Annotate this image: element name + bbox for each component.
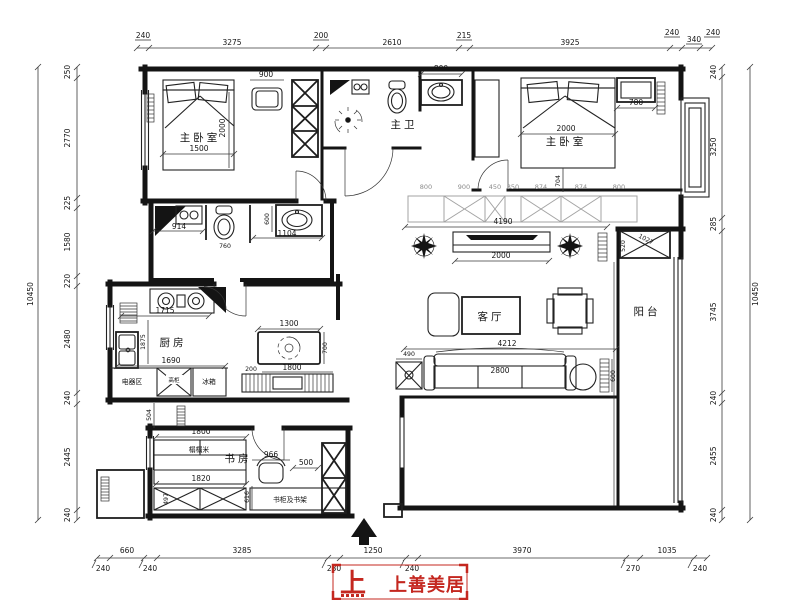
dim-top-4: 215 — [457, 31, 472, 40]
dim-chain-bottom: 240 660 240 3285 230 1250 240 3970 270 1… — [92, 546, 710, 573]
dim-left-3: 1580 — [63, 232, 72, 251]
dim-bed2-cab: 780 — [629, 98, 644, 107]
label-appliance-area: 电器区 — [122, 377, 143, 386]
dim-tatami-b: 1820 — [191, 474, 210, 483]
room-study: 榻榻米 1800 1820 书房 497 966 500 书柜及书架 616 — [153, 427, 346, 513]
dim-right-1: 3250 — [709, 137, 718, 156]
dim-ward-0: 800 — [420, 183, 432, 191]
room-label-master-bath: 主卫 — [391, 119, 418, 131]
dim-bath-sink: 800 — [434, 64, 449, 73]
balcony-cabinet: 1027 520 — [620, 231, 670, 258]
label-tall-cabinet: 高柜 — [168, 376, 180, 384]
dim-balc-side: 520 — [620, 240, 627, 252]
dim-sofa: 2800 — [490, 366, 509, 375]
sink-icon — [421, 80, 462, 105]
dim-right-4: 240 — [709, 391, 718, 406]
door-swings — [214, 148, 508, 460]
dim-bath2-d: 600 — [264, 213, 271, 225]
label-bookcase-shelf: 书柜及书架 — [273, 495, 307, 504]
bed-icon — [521, 78, 615, 168]
dim-bed1-bench: 900 — [259, 70, 274, 79]
dim-right-5: 2455 — [709, 446, 718, 465]
dim-side-table: 490 — [403, 351, 415, 358]
dim-bed1-len: 2000 — [218, 118, 227, 137]
dim-left-7: 2445 — [63, 447, 72, 466]
dim-chair: 966 — [264, 450, 279, 459]
dim-cab: 497 — [163, 493, 170, 505]
room-label-balcony: 阳台 — [634, 305, 661, 318]
dim-living-total: 4212 — [497, 339, 516, 348]
dim-ward-6: 800 — [613, 183, 625, 191]
dim-right-total: 10450 — [751, 282, 760, 306]
corner-cabinet-icon — [198, 287, 226, 313]
dim-bottom-7: 3970 — [512, 546, 531, 555]
dim-ward-3: 350 — [507, 183, 519, 191]
shower-corner-icon — [155, 206, 186, 236]
dim-bench-w: 1800 — [282, 363, 301, 372]
dim-left-1: 2770 — [63, 128, 72, 147]
dim-bed1-w: 1500 — [189, 144, 208, 153]
shower-head-icon — [335, 107, 362, 133]
brand-logo: 上 上善美居 — [333, 565, 467, 599]
kitchen-sink-icon — [116, 332, 138, 368]
dim-desk: 500 — [299, 458, 314, 467]
dim-ward-1: 900 — [458, 183, 470, 191]
washer-icon — [352, 80, 369, 94]
shower-corner-icon — [330, 80, 350, 95]
dim-kit-a: 1715 — [155, 306, 174, 315]
dim-kit-c: 1690 — [161, 356, 180, 365]
dim-bottom-5: 1250 — [363, 546, 382, 555]
floor-plan-svg: 240 3275 200 2610 215 3925 240 340 240 2… — [0, 0, 800, 600]
dim-bottom-9: 1035 — [657, 546, 676, 555]
room-living: 客厅 4212 490 2800 600 — [396, 288, 619, 392]
dim-bath2-toilet: 760 — [219, 243, 231, 250]
bench-icon — [252, 88, 282, 110]
room-label-master-bedroom-right: 主卧室 — [546, 135, 587, 148]
dim-chain-top: 240 3275 200 2610 215 3925 240 340 240 — [134, 28, 720, 51]
dim-top-6: 240 — [665, 28, 680, 37]
dining-table-icon — [258, 332, 320, 364]
dim-bed2-depth: 704 — [555, 175, 562, 187]
radiator-icon — [657, 82, 665, 114]
room-kitchen: 厨房 1715 1875 1690 电器区 高柜 冰箱 1300 700 — [110, 287, 333, 396]
room-label-kitchen: 厨房 — [160, 336, 187, 349]
room-label-living: 客厅 — [478, 310, 505, 323]
dim-left-8: 240 — [63, 508, 72, 523]
radiator-icon — [120, 303, 137, 323]
toilet-icon — [388, 81, 406, 113]
dim-left-2: 225 — [63, 196, 72, 211]
dim-living-side: 600 — [610, 370, 617, 382]
dim-kit-b: 1875 — [140, 334, 147, 350]
dim-bath2-sink: 1104 — [277, 229, 296, 238]
logo-mark: 上 — [340, 568, 366, 598]
dim-bottom-10: 240 — [693, 564, 708, 573]
dim-left-0: 250 — [63, 65, 72, 80]
label-tatami: 榻榻米 — [189, 445, 210, 454]
radiator-icon — [598, 233, 607, 261]
dim-chain-left: 250 2770 225 1580 220 2480 240 2445 240 … — [26, 64, 80, 523]
rug-icon — [428, 293, 459, 336]
dim-right-3: 3745 — [709, 302, 718, 321]
dim-top-3: 2610 — [382, 38, 401, 47]
room-label-study: 书房 — [225, 452, 252, 465]
dim-top-5: 3925 — [560, 38, 579, 47]
dim-table-d: 700 — [322, 342, 329, 354]
dim-tv-wall: 2000 — [491, 251, 510, 260]
service-bay — [97, 470, 144, 518]
dim-left-4: 220 — [63, 274, 72, 289]
bench-cabinet-icon — [242, 374, 333, 392]
dim-bed2-len: 2000 — [556, 124, 575, 133]
dim-chain-right: 240 3250 285 3745 240 2455 240 10450 — [709, 64, 760, 523]
dim-ward-2: 450 — [489, 183, 501, 191]
dim-shelf: 616 — [244, 491, 251, 503]
dim-top-8: 240 — [706, 28, 721, 37]
dim-bottom-8: 270 — [626, 564, 641, 573]
dim-bath2-w: 914 — [172, 222, 187, 231]
radiator-icon — [177, 406, 185, 426]
radiator-icon — [600, 359, 609, 392]
dim-ward-5: 874 — [575, 183, 587, 191]
logo-brand-text: 上善美居 — [389, 574, 465, 595]
dim-left-6: 240 — [63, 391, 72, 406]
label-fridge: 冰箱 — [202, 377, 216, 386]
round-table-icon — [570, 364, 596, 390]
dim-top-7: 340 — [687, 35, 702, 44]
room-second-bath: 914 760 1104 600 — [150, 205, 325, 250]
dim-right-2: 285 — [709, 217, 718, 232]
room-label-master-bedroom-left: 主卧室 — [180, 131, 221, 144]
dim-ward-total: 4190 — [493, 217, 512, 226]
interior-walls — [322, 69, 681, 506]
dim-bottom-0: 240 — [96, 564, 111, 573]
dim-bottom-1: 660 — [120, 546, 135, 555]
dim-top-1: 3275 — [222, 38, 241, 47]
dim-bottom-2: 240 — [143, 564, 158, 573]
plant-icon — [557, 233, 583, 259]
dim-table-w: 1300 — [279, 319, 298, 328]
armchair-icon — [547, 288, 593, 334]
tv-console-icon — [453, 232, 550, 252]
tall-cabinet-icon — [322, 443, 346, 513]
entry-arrow-icon — [351, 518, 377, 545]
dim-bench-gap: 200 — [245, 366, 257, 373]
dim-right-6: 240 — [709, 508, 718, 523]
dim-hall: 504 — [146, 409, 153, 421]
plant-icon — [411, 233, 437, 259]
wardrobe-icon — [292, 80, 318, 157]
dim-left-5: 2480 — [63, 329, 72, 348]
dim-bottom-3: 3285 — [232, 546, 251, 555]
dim-top-2: 200 — [314, 31, 329, 40]
dim-left-total: 10450 — [26, 282, 35, 306]
side-table-icon — [396, 362, 422, 389]
dim-top-0: 240 — [136, 31, 151, 40]
tv-wall: 2000 — [411, 232, 607, 264]
dim-right-0: 240 — [709, 65, 718, 80]
closet-hatch-icon — [475, 80, 499, 157]
dim-ward-4: 874 — [535, 183, 547, 191]
room-master-bedroom-right: 2000 主卧室 780 704 — [518, 78, 665, 192]
dim-tatami-a: 1800 — [191, 427, 210, 436]
toilet-icon — [214, 206, 234, 239]
room-master-bedroom-left: 主卧室 1500 2000 900 — [147, 70, 318, 170]
